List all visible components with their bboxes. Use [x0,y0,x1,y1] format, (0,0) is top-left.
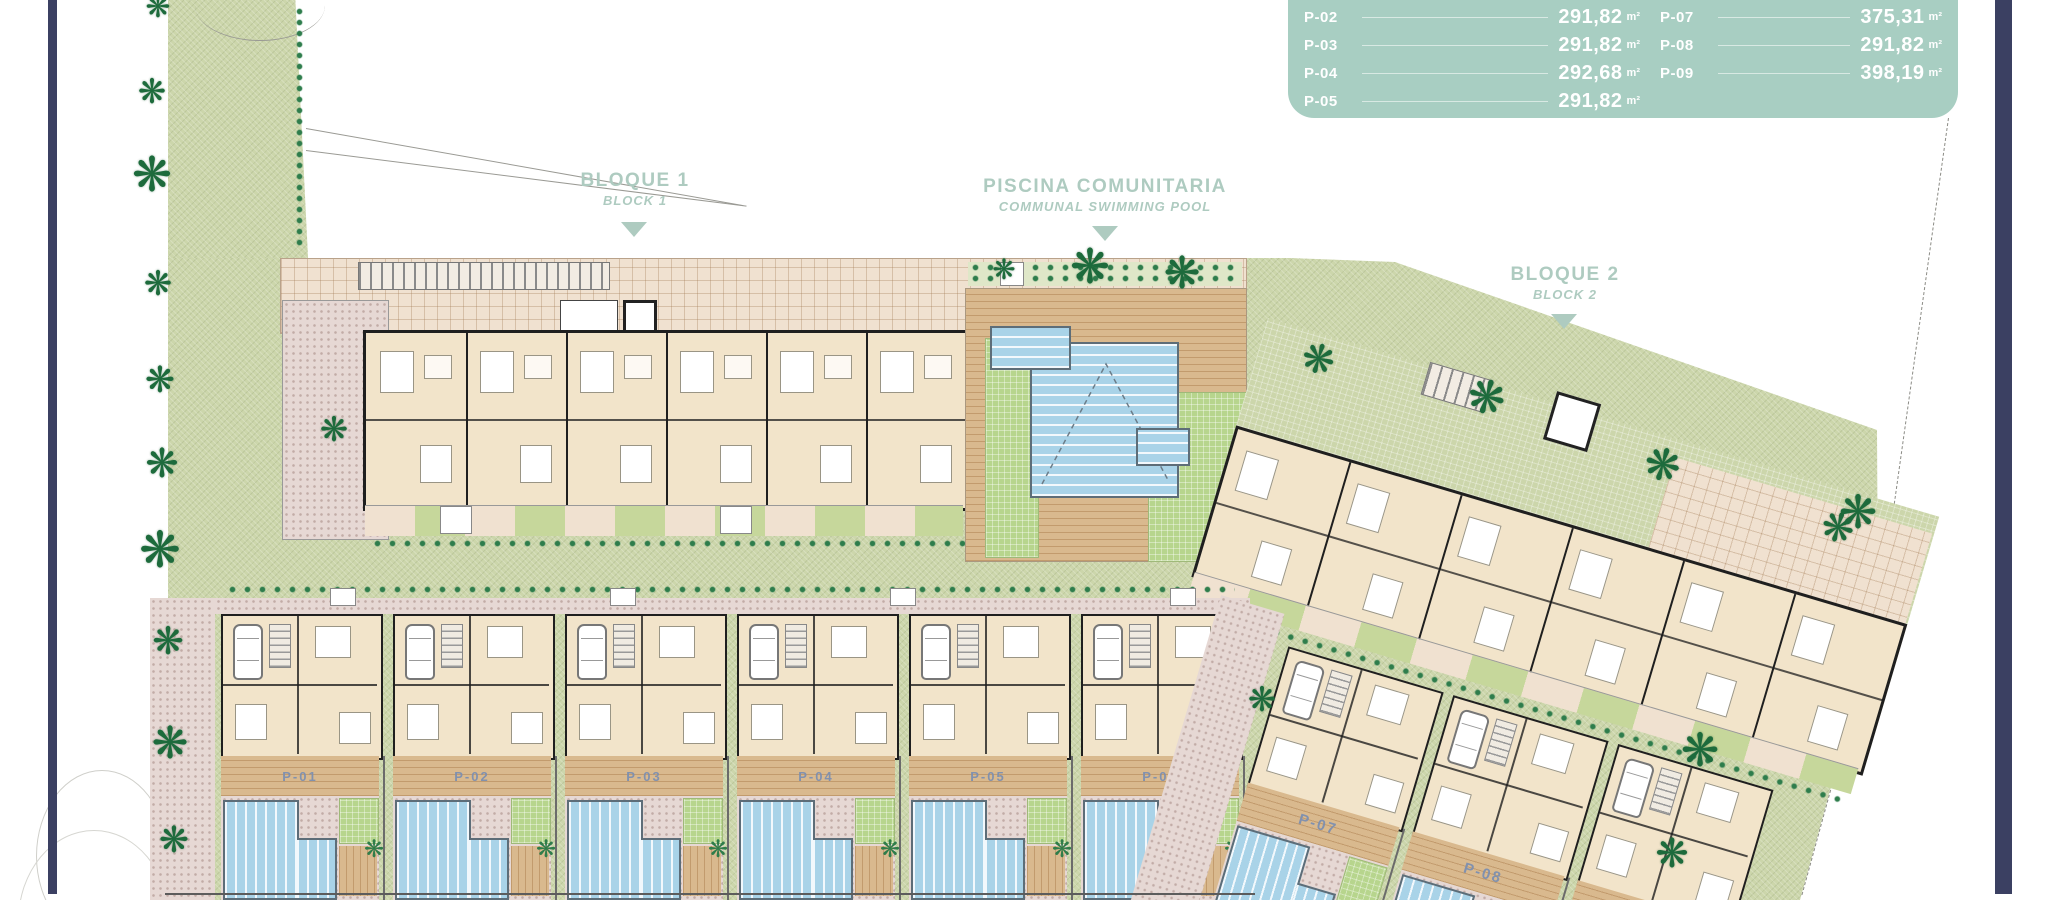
villa-floorplan [1577,744,1774,900]
legend-row: P-07 375,31 m² [1660,3,1942,31]
villa-garden [565,796,723,900]
bed [1362,573,1403,619]
interior-wall [395,684,549,686]
legend-row: P-04 292,68 m² [1304,59,1640,87]
area-unit: m² [1929,11,1942,23]
frame-bar-right [1995,0,2012,894]
plot-area: 291,82 [1558,90,1622,113]
label-bloque1-subtitle: BLOCK 1 [535,193,735,208]
bed [1457,516,1502,566]
private-pool [641,838,681,900]
villa-plot: P-04 ❋ [731,598,903,900]
legend-column-1: P-02 291,82 m² P-03 291,82 m² P-04 292,6… [1304,3,1640,115]
bed [1679,582,1724,632]
private-pool [911,800,987,900]
bed [1473,606,1514,652]
bathroom [424,355,452,379]
bathroom [824,355,852,379]
plot-label: P-08 [1462,859,1505,887]
label-piscina-subtitle: COMMUNAL SWIMMING POOL [945,199,1265,214]
plot-code: P-07 [1660,9,1708,26]
plot-code: P-09 [1660,65,1708,82]
bed [683,712,715,744]
stairs [269,624,291,668]
palm-tree-icon: ❋ [152,722,189,766]
lawn-patch [1336,856,1387,900]
label-piscina: PISCINA COMUNITARIA COMMUNAL SWIMMING PO… [945,176,1265,214]
tree-icon: ❋ [880,838,900,862]
stairs [957,624,979,668]
bed [1366,685,1410,726]
bed [1266,737,1307,781]
apartment-unit [366,333,468,508]
bed [659,626,695,658]
private-pool [395,800,471,900]
villa-plot: P-03 ❋ [559,598,731,900]
palm-tree-icon: ❋ [145,444,179,484]
bed [407,704,439,740]
plot-label: P-04 [798,769,833,784]
bed [680,351,714,393]
bed [1003,626,1039,658]
area-legend: P-02 291,82 m² P-03 291,82 m² P-04 292,6… [1288,0,1958,118]
palm-tree-icon: ❋ [1248,683,1277,717]
bed [1530,823,1570,863]
plot-code: P-04 [1304,65,1352,82]
bed [1531,733,1575,774]
villa-plot: P-01 ❋ [215,598,387,900]
interior-wall [366,419,466,421]
plot-fence [383,756,385,900]
bed [820,445,852,483]
tree-icon: ❋ [320,413,349,447]
villa-deck: P-04 [737,756,895,796]
palm-tree-icon: ❋ [1681,727,1720,773]
tree-icon: ❋ [708,838,728,862]
leader-line [1362,101,1548,102]
plot-code: P-08 [1660,37,1708,54]
private-pool [739,800,815,900]
interior-wall [911,684,1065,686]
plot-code: P-05 [1304,93,1352,110]
private-pool [567,800,643,900]
leader-line [1718,73,1850,74]
villa-garden [393,796,551,900]
bed [579,704,611,740]
interior-wall [567,684,721,686]
interior-wall [466,419,566,421]
leader-line [1362,73,1548,74]
label-piscina-title: PISCINA COMUNITARIA [945,176,1265,198]
car-icon [233,624,263,680]
apartment-unit [866,333,966,508]
bathroom [924,355,952,379]
palm-tree-icon: ❋ [1839,489,1878,535]
interior-wall [1216,502,1328,537]
plot-area: 291,82 [1558,34,1622,57]
car-icon [577,624,607,680]
plot-code: P-03 [1304,37,1352,54]
bed [480,351,514,393]
private-pool [223,800,299,900]
plot-code: P-02 [1304,9,1352,26]
pointer-triangle-icon [1551,314,1577,329]
garden-gate [440,506,472,534]
site-plan: P-02 291,82 m² P-03 291,82 m² P-04 292,6… [0,0,2048,900]
car-icon [921,624,951,680]
legend-column-2: P-07 375,31 m² P-08 291,82 m² P-09 398,1… [1660,3,1942,87]
shrub-column [292,6,306,250]
bed [1365,774,1405,814]
palm-tree-icon: ❋ [1070,244,1110,292]
label-bloque2-subtitle: BLOCK 2 [1465,287,1665,302]
bed [315,626,351,658]
villa-garden [221,796,379,900]
label-bloque1-title: BLOQUE 1 [535,170,735,192]
villa-deck: P-01 [221,756,379,796]
plot-area: 291,82 [1860,34,1924,57]
bed [720,445,752,483]
bed [1694,871,1734,900]
interior-wall [566,419,666,421]
stairs [613,624,635,668]
car-icon [749,624,779,680]
bed [235,704,267,740]
bed [1696,672,1737,718]
villa-plot: P-02 ❋ [387,598,559,900]
stairs [785,624,807,668]
bed [751,704,783,740]
label-bloque2: BLOQUE 2 BLOCK 2 [1465,264,1665,302]
legend-row: P-09 398,19 m² [1660,59,1942,87]
interior-wall [739,684,893,686]
interior-wall [1772,667,1884,702]
bathroom [624,355,652,379]
villa-garden [737,796,895,900]
bathroom [724,355,752,379]
bed [923,704,955,740]
shrub-row [225,584,1235,596]
pointer-triangle-icon [621,222,647,237]
bloque1-stairs [358,262,610,290]
area-unit: m² [1627,11,1640,23]
plot-fence [555,756,557,900]
frame-bar-left [48,0,57,894]
car-icon [1093,624,1123,680]
area-unit: m² [1929,39,1942,51]
private-pool [469,838,509,900]
bed [487,626,523,658]
private-pool [297,838,337,900]
apartment-unit [566,333,668,508]
car-icon [1281,659,1326,721]
bathroom [524,355,552,379]
bed [855,712,887,744]
bed [1584,639,1625,685]
plot-fence [727,756,729,900]
bed [1791,615,1836,665]
bed [420,445,452,483]
villa-deck: P-03 [565,756,723,796]
bed [1696,782,1740,823]
palm-tree-icon: ❋ [992,256,1015,284]
palm-tree-icon: ❋ [138,75,167,109]
interior-wall [223,684,377,686]
bloque1-building [363,330,969,511]
leader-line [1362,17,1548,18]
bed [1251,540,1292,586]
legend-row: P-05 291,82 m² [1304,87,1640,115]
bed [1235,450,1280,500]
bed [339,712,371,744]
bed [880,351,914,393]
plot-label: P-03 [626,769,661,784]
palm-tree-icon: ❋ [132,152,172,200]
bed [511,712,543,744]
palm-tree-icon: ❋ [1655,834,1689,874]
area-unit: m² [1627,39,1640,51]
area-unit: m² [1627,67,1640,79]
private-pool [813,838,853,900]
bed [1431,785,1472,829]
area-unit: m² [1627,95,1640,107]
label-bloque1: BLOQUE 1 BLOCK 1 [535,170,735,208]
bed [780,351,814,393]
villa-floorplan [221,614,383,760]
palm-tree-icon: ❋ [1164,252,1201,296]
palm-tree-icon: ❋ [139,525,181,575]
leader-line [1718,45,1850,46]
palm-tree-icon: ❋ [144,267,173,301]
interior-wall [1327,535,1439,570]
villa-floorplan [565,614,727,760]
plot-area: 375,31 [1860,6,1924,29]
plot-area: 291,82 [1558,6,1622,29]
plot-label: P-07 [1297,810,1340,838]
bed [831,626,867,658]
apartment-unit [466,333,568,508]
area-unit: m² [1929,67,1942,79]
car-icon [405,624,435,680]
plot-label: P-01 [282,769,317,784]
interior-wall [1661,634,1773,669]
garden-gate [720,506,752,534]
bed [1568,549,1613,599]
bed [520,445,552,483]
label-bloque2-title: BLOQUE 2 [1465,264,1665,286]
apartment-unit [766,333,868,508]
pointer-triangle-icon [1092,226,1118,241]
interior-wall [866,419,966,421]
jacuzzi-pool [1136,428,1190,466]
legend-row: P-02 291,82 m² [1304,3,1640,31]
plot-area: 292,68 [1558,62,1622,85]
bed [920,445,952,483]
legend-row: P-08 291,82 m² [1660,31,1942,59]
interior-wall [1550,601,1662,636]
palm-tree-icon: ❋ [159,822,189,858]
leader-line [1362,45,1548,46]
villa-floorplan [737,614,899,760]
bed [1346,483,1391,533]
plot-fence [899,756,901,900]
bed [380,351,414,393]
garden-fence-line [165,893,1255,895]
leader-line [1718,17,1850,18]
legend-row: P-03 291,82 m² [1304,31,1640,59]
stairs [441,624,463,668]
tree-icon: ❋ [536,838,556,862]
apartment-unit [666,333,768,508]
stairs [1129,624,1151,668]
palm-tree-icon: ❋ [152,623,184,661]
kids-pool [990,326,1071,370]
bed [580,351,614,393]
palm-tree-icon: ❋ [145,362,175,398]
interior-wall [1439,568,1551,603]
palm-tree-icon: ❋ [145,0,170,23]
villa-deck: P-02 [393,756,551,796]
interior-wall [666,419,766,421]
plot-label: P-02 [454,769,489,784]
bed [1596,834,1637,878]
plot-area: 398,19 [1860,62,1924,85]
tree-icon: ❋ [364,838,384,862]
car-icon [1446,708,1491,770]
interior-wall [766,419,866,421]
plot-label: P-05 [970,769,1005,784]
car-icon [1611,757,1656,819]
bed [620,445,652,483]
bed [1807,705,1848,751]
villa-floorplan [393,614,555,760]
